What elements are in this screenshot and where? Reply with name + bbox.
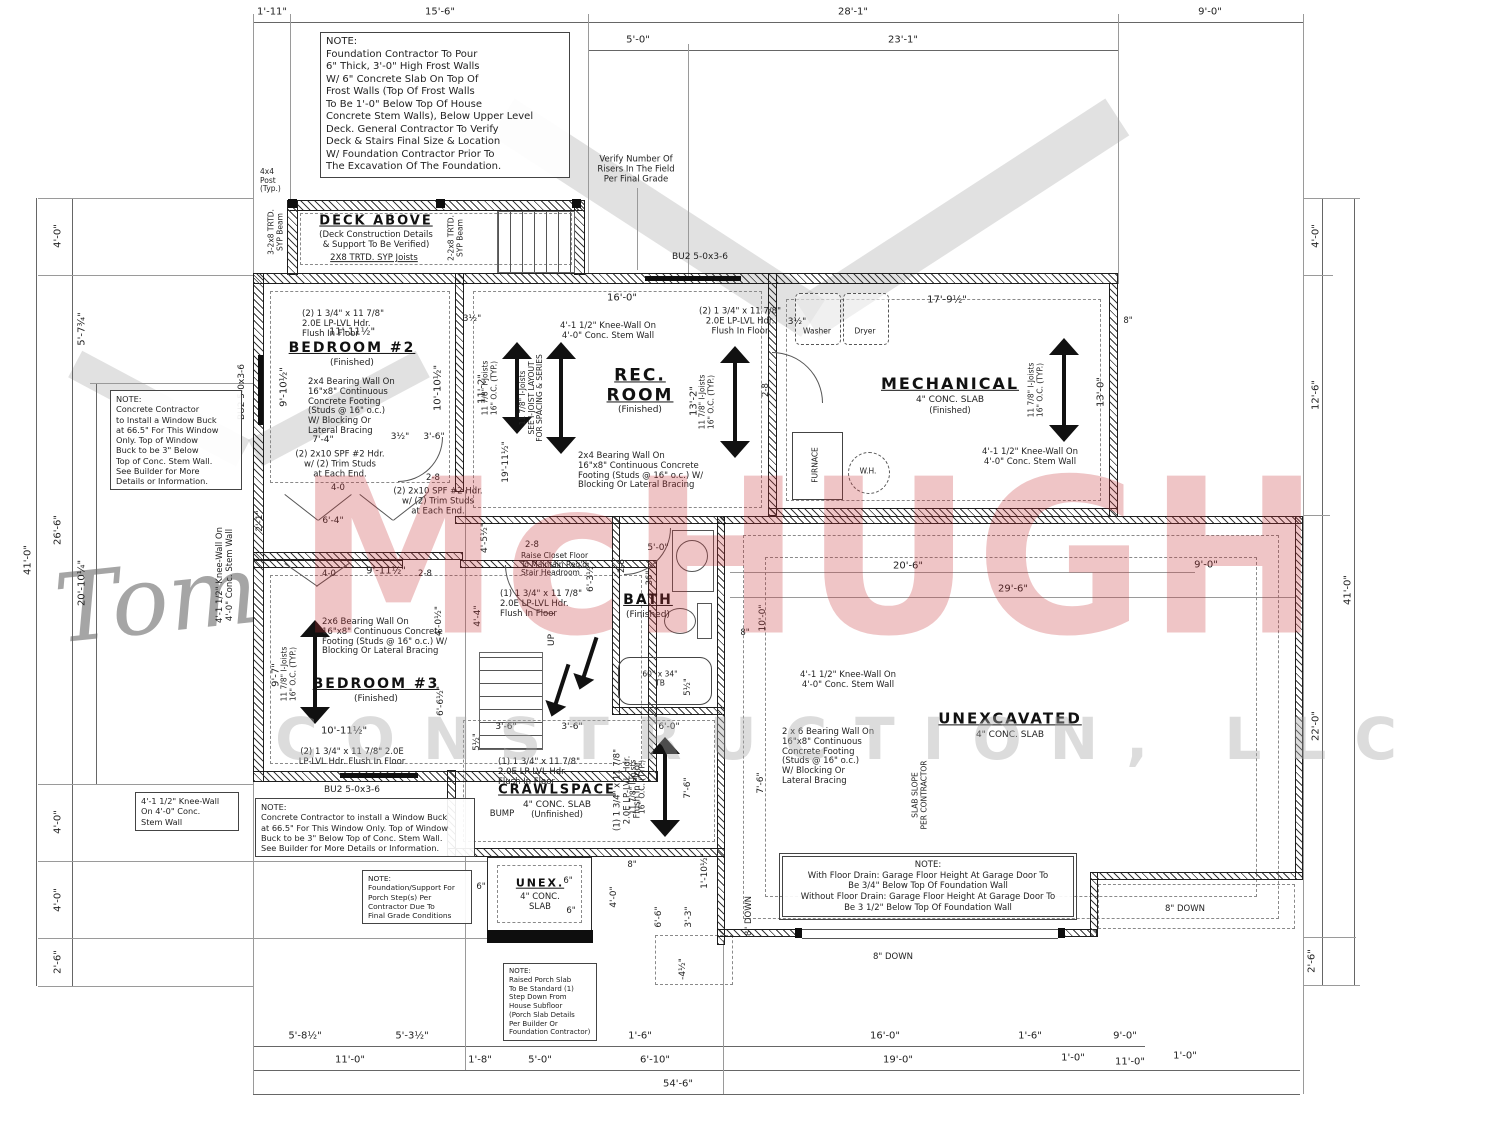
closet-door-line — [284, 494, 318, 521]
garage-door-opening — [802, 929, 1058, 939]
dimension-line — [253, 22, 1303, 23]
bathtub-label: 60" x 34" TB — [642, 670, 677, 687]
bearing-wall-note: 2x4 Bearing Wall On 16"x8" Continuous Co… — [308, 378, 395, 437]
window-bedroom3 — [340, 773, 418, 778]
dim-label: 12'-6" — [1310, 380, 1322, 410]
dim-label: 20'-6" — [893, 560, 923, 572]
deck-post-label: 4x4 Post (Typ.) — [260, 168, 281, 194]
dim-label: 16'-0" — [870, 1030, 900, 1042]
washer-label: Washer — [803, 328, 831, 337]
dim-label: 5'-0" — [626, 34, 650, 46]
witness-line — [588, 14, 589, 274]
dim-label: 3½" — [391, 432, 410, 442]
deck-joists-label: 2X8 TRTD. SYP Joists — [330, 254, 418, 264]
furnace-label: FURNACE — [812, 447, 821, 483]
dim-label: 4'-0" — [52, 810, 64, 834]
down-label: 8" DOWN — [745, 896, 755, 936]
dim-label: 4'-0" — [1310, 224, 1322, 248]
water-heater-label: W.H. — [860, 468, 877, 477]
deck-beam-label: 2-2x8 TRTD. SYP Beam — [447, 215, 464, 261]
dim-label: 7'-4" — [312, 435, 333, 445]
note-foundation: NOTE: Foundation Contractor To Pour 6" T… — [320, 32, 570, 178]
dim-label: 28'-1" — [838, 6, 868, 18]
witness-line — [1303, 985, 1360, 986]
dim-label: 6'-6½" — [436, 686, 446, 716]
wall-segment — [253, 552, 463, 560]
closet-door-line — [359, 494, 393, 521]
dim-label: -4½" — [678, 958, 688, 980]
dim-label: 17'-9½" — [927, 294, 967, 306]
joist-direction-arrow — [650, 737, 680, 837]
joist-label: 11 7/8" I-Joists 16" O.C. (TYP.) — [1027, 363, 1044, 418]
garage-door-jamb — [1058, 928, 1065, 938]
dim-label: 9'-0" — [1113, 1030, 1137, 1042]
dim-label: 1'-6" — [1018, 1030, 1042, 1042]
room-sub-crawl: 4" CONC. SLAB — [523, 800, 591, 810]
witness-line — [1303, 515, 1330, 516]
dim-label: 20'-10¼" — [76, 560, 88, 606]
dim-label: 1'-6" — [628, 1030, 652, 1042]
dim-label: 9'-0" — [1194, 559, 1218, 571]
header-note: (2) 1 3/4" x 11 7/8" 2.0E LP-LVL Hdr. Fl… — [299, 748, 406, 768]
header-note: (2) 2x10 SPF #2 Hdr. w/ (2) Trim Studs a… — [393, 487, 482, 516]
room-label-mechanical: MECHANICAL — [881, 375, 1019, 393]
dim-label: 13'-0" — [1095, 377, 1107, 407]
bearing-wall-note: 2 x 6 Bearing Wall On 16"x8" Continuous … — [782, 728, 874, 787]
wall-segment — [612, 707, 725, 715]
deck-sub-label: (Deck Construction Details & Support To … — [319, 231, 433, 251]
dim-label: 7'-6" — [756, 772, 766, 793]
note-window-buck-bottom: NOTE: Concrete Contractor to install a W… — [255, 798, 475, 857]
down-label: 8" DOWN — [873, 953, 913, 963]
note-risers: Verify Number Of Risers In The Field Per… — [597, 155, 674, 184]
dim-label: 11'-2" — [476, 374, 488, 404]
porch-front-edge — [487, 930, 593, 943]
room-label-rec: REC. ROOM — [607, 366, 674, 405]
wall-segment — [612, 516, 725, 524]
dim-label: 11'-0" — [335, 1054, 365, 1066]
window-rec-room — [645, 276, 741, 281]
dim-label: 6'-3½" — [586, 562, 596, 592]
header-note: (1) 1 3/4" x 11 7/8" 2.0E LP-LVL Hdr. Fl… — [498, 758, 580, 787]
dim-label: 2-8 — [762, 383, 772, 397]
dim-label: 16'-0" — [607, 292, 637, 304]
dim-label: 4'-0" — [609, 886, 619, 907]
dim-label: 3'-6" — [561, 722, 582, 732]
dimension-line — [1354, 198, 1355, 985]
dim-label: 5'-3½" — [395, 1030, 428, 1042]
room-sub-rec: (Finished) — [618, 405, 662, 415]
room-label-bedroom3: BEDROOM #3 — [313, 676, 440, 692]
dim-label: 1'-11" — [257, 6, 287, 18]
dim-label: 54'-6" — [663, 1078, 693, 1090]
dim-label: 4'-0" — [52, 224, 64, 248]
dim-label: 7'-6" — [683, 777, 693, 798]
dim-label: 3'-3" — [684, 906, 694, 927]
room-sub-porch: 4" CONC. SLAB — [520, 893, 560, 913]
dim-label: 5½" — [473, 733, 483, 751]
witness-line — [1303, 14, 1304, 1094]
deck-beam-label: 3-2x8 TRTD. SYP Beam — [267, 209, 284, 255]
dim-label: 2'-6" — [1306, 949, 1318, 973]
dim-label: 1'-8" — [468, 1054, 492, 1066]
dim-label: 9'-11½" — [366, 565, 406, 577]
witness-line — [38, 861, 487, 862]
witness-line — [38, 198, 253, 199]
header-note: (2) 1 3/4" x 11 7/8" 2.0E LP-LVL Hdr. Fl… — [699, 307, 781, 336]
wall-segment — [717, 516, 1303, 524]
dim-label: 9'-0" — [1198, 6, 1222, 18]
note-porch-support: NOTE: Foundation/Support For Porch Step(… — [362, 870, 472, 924]
dim-label: 11'-0" — [1115, 1056, 1145, 1068]
room-sub-unex: 4" CONC. SLAB — [976, 730, 1044, 740]
dimension-line — [72, 198, 73, 986]
bearing-wall-note: 2x6 Bearing Wall On 16"x8" Continuous Co… — [322, 618, 447, 657]
dim-label: 5½" — [684, 678, 694, 696]
dim-label: 5'-0" — [647, 543, 668, 553]
leader-line — [637, 188, 638, 270]
joist-label: 11 7/8" I-Joists 16" O.C. (TYP.) — [698, 375, 715, 430]
knee-wall-note: 4'-1 1/2" Knee-Wall On 4'-0" Conc. Stem … — [800, 671, 896, 691]
knee-wall-note-box: 4'-1 1/2" Knee-Wall On 4'-0" Conc. Stem … — [135, 792, 239, 831]
knee-wall-note: 4'-1 1/2" Knee-Wall On 4'-0" Conc. Stem … — [216, 527, 236, 623]
dim-label: 6" — [476, 883, 485, 893]
window-code-label: BU2 5-0x3-6 — [324, 785, 380, 795]
witness-line — [38, 986, 253, 987]
dim-label: 4'-0½" — [434, 606, 444, 636]
bump-label: BUMP — [490, 810, 515, 820]
dim-label: 10'-0" — [758, 604, 768, 631]
room-sub2-mechanical: (Finished) — [929, 407, 970, 417]
down-label: 8" DOWN — [1165, 905, 1205, 915]
dim-label: 5'-0" — [528, 1054, 552, 1066]
bath-sink — [676, 540, 708, 572]
dimension-line — [1322, 198, 1323, 985]
room-sub-mechanical: 4" CONC. SLAB — [916, 395, 984, 405]
joist-direction-arrow — [1049, 338, 1079, 442]
dim-label: 3½" — [463, 314, 482, 324]
room-sub-bedroom2: (Finished) — [330, 358, 374, 368]
stairs-up-label: UP — [547, 634, 557, 646]
knee-wall-note: 4'-1 1/2" Knee-Wall On 4'-0" Conc. Stem … — [560, 322, 656, 342]
header-note: (2) 2x10 SPF #2 Hdr. w/ (2) Trim Studs a… — [295, 450, 384, 479]
dim-label: 2'-1" — [255, 510, 265, 531]
witness-line — [688, 44, 689, 279]
room-label-deck: DECK ABOVE — [319, 215, 432, 230]
dryer — [843, 293, 889, 345]
dim-label: 5'-8½" — [288, 1030, 321, 1042]
wall-segment — [455, 273, 464, 492]
joist-direction-arrow — [720, 346, 750, 458]
deck-post — [288, 199, 297, 208]
dimension-line — [253, 1070, 1300, 1071]
dim-label: 4'-5½" — [480, 523, 490, 553]
deck-post — [436, 199, 445, 208]
dimension-line — [36, 198, 37, 986]
dim-label: 6" — [566, 907, 575, 917]
dim-label: 22'-0" — [1310, 711, 1322, 741]
room-sub2-crawl: (Unfinished) — [531, 811, 583, 821]
witness-line — [38, 938, 487, 939]
dim-label: 41'-0" — [1342, 575, 1354, 605]
joist-label: 11 7/8" I-Joists SEE I-JOIST LAYOUT FOR … — [519, 354, 545, 442]
dim-label: 23'-1" — [888, 34, 918, 46]
window-bedroom2 — [258, 355, 263, 425]
dim-label: 3½" — [788, 317, 807, 327]
dim-label: 1'-0" — [1173, 1050, 1197, 1062]
dim-label: 41'-0" — [22, 545, 34, 575]
dim-label: 4'-4" — [473, 605, 483, 626]
deck-post — [572, 199, 581, 208]
room-label-bedroom2: BEDROOM #2 — [289, 340, 416, 356]
dim-label: 11'-11½" — [329, 326, 375, 338]
wall-segment — [1109, 283, 1118, 517]
note-slab-slope: SLAB SLOPE PER CONTRACTOR — [911, 760, 928, 829]
dimension-line — [96, 383, 97, 784]
garage-door-jamb — [795, 928, 802, 938]
dim-label: 9'-10½" — [278, 367, 290, 407]
dim-label: 1'-0" — [1061, 1052, 1085, 1064]
witness-line — [38, 784, 253, 785]
witness-line — [1303, 275, 1333, 276]
dim-label: 2-8 — [618, 559, 628, 573]
room-sub-bath: (Finished) — [626, 610, 670, 620]
wall-segment — [574, 200, 585, 275]
joist-direction-arrow — [546, 342, 576, 454]
witness-line — [1303, 937, 1356, 938]
dim-label: 2-8 — [426, 474, 440, 484]
dim-label: 8" — [740, 629, 749, 639]
wall-segment — [1295, 516, 1303, 880]
dim-label: 26'-6" — [52, 515, 64, 545]
dim-label: 2'-6" — [52, 950, 64, 974]
dimension-line — [253, 1094, 1300, 1095]
wall-segment — [1090, 872, 1303, 880]
joist-label: 11 7/8" I-Joists 16" O.C. (TYP.) — [280, 647, 297, 702]
dim-label: 6'-6" — [654, 906, 664, 927]
witness-line — [1303, 198, 1360, 199]
dim-label: 10'-10½" — [432, 365, 444, 411]
window-code-label: BU2 5-0x3-6 — [672, 252, 728, 262]
dim-label: 4-0 — [322, 570, 336, 580]
note-raise-closet: Raise Closet Floor To Maintain Req'd Sta… — [521, 552, 588, 578]
witness-line — [90, 383, 253, 384]
witness-line — [38, 275, 253, 276]
dim-label: 19'-11½" — [501, 441, 511, 483]
dimension-line — [588, 50, 1118, 51]
dim-label: 6'-0" — [658, 722, 679, 732]
dim-label: 4'-0" — [52, 888, 64, 912]
dim-label: 8" — [1123, 317, 1132, 327]
dryer-label: Dryer — [855, 328, 876, 337]
deck-stairs — [497, 211, 575, 273]
dim-label: 6'-10" — [640, 1054, 670, 1066]
room-label-bath: BATH — [623, 592, 673, 608]
dim-label: 19'-0" — [883, 1054, 913, 1066]
dim-label: 1'-10½" — [700, 853, 710, 889]
wall-segment — [717, 516, 725, 945]
room-label-porch: UNEX. — [516, 878, 564, 891]
dim-label: 5'-7¾" — [76, 312, 88, 345]
witness-line — [1118, 14, 1119, 284]
note-window-buck-left: NOTE: Concrete Contractor to Install a W… — [110, 390, 242, 490]
note-garage-floor: NOTE: With Floor Drain: Garage Floor Hei… — [782, 856, 1074, 917]
dim-label: 4-0 — [331, 484, 345, 494]
dim-label: 13'-2" — [688, 386, 700, 416]
witness-line — [290, 14, 291, 204]
dim-label: 2-8 — [525, 541, 539, 551]
header-note: (1) 1 3/4" x 11 7/8" 2.0E LP-LVL Hdr. Fl… — [500, 590, 582, 619]
wall-segment — [447, 848, 725, 857]
dim-label: 15'-6" — [425, 6, 455, 18]
dim-label: 6'-4" — [322, 516, 343, 526]
dim-label: 29'-6" — [998, 583, 1028, 595]
dim-label: 36" — [646, 571, 656, 586]
dim-label: 8" — [627, 861, 636, 871]
room-sub-bedroom3: (Finished) — [354, 694, 398, 704]
dimension-line — [253, 1046, 1145, 1047]
dim-label: 6" — [563, 877, 572, 887]
basement-stairs — [479, 652, 543, 750]
dim-label: 3'-6" — [423, 432, 444, 442]
floor-plan-canvas: Tom McHUGH CONSTRUCTION, LLC — [0, 0, 1487, 1141]
dim-label: 9'-7" — [270, 663, 282, 687]
wall-segment — [287, 200, 298, 275]
dim-label: 2-8 — [418, 570, 432, 580]
header-note: (1) 1 3/4" x 11 7/8" 2.0E LP-LVL Hdr. Fl… — [613, 749, 642, 831]
dim-label: 3'-6" — [495, 722, 516, 732]
note-porch-slab: NOTE: Raised Porch Slab To Be Standard (… — [503, 963, 597, 1041]
room-label-unex: UNEXCAVATED — [938, 710, 1082, 727]
knee-wall-note: 4'-1 1/2" Knee-Wall On 4'-0" Conc. Stem … — [982, 448, 1078, 468]
bearing-wall-note: 2x4 Bearing Wall On 16"x8" Continuous Co… — [578, 452, 703, 491]
dim-label: 10'-11½" — [321, 725, 367, 737]
toilet-tank — [697, 603, 712, 639]
wall-segment — [1090, 872, 1098, 937]
